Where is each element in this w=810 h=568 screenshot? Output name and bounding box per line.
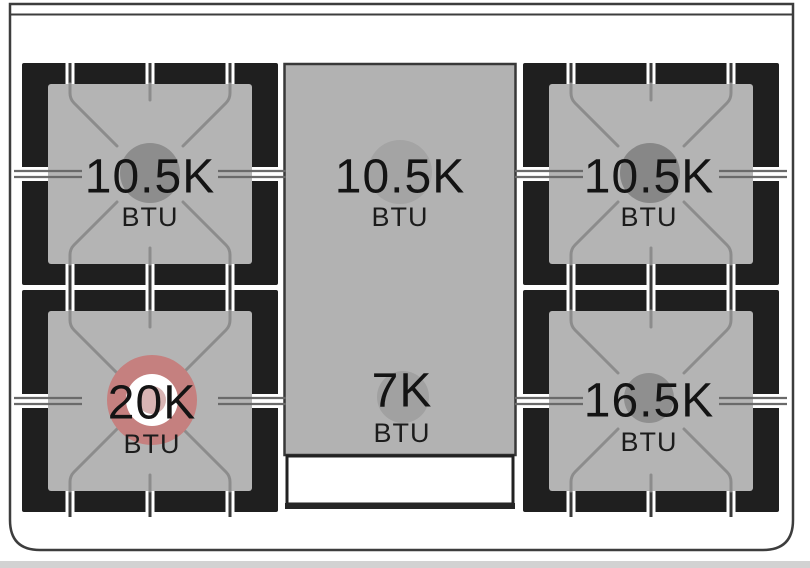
btu-unit-top-left: BTU [122,202,179,232]
btu-unit-top-right: BTU [621,202,678,232]
cooktop-diagram-canvas: 10.5K BTU 10.5K BTU 10.5K BTU 20K BTU 7K… [0,0,810,568]
floor-shadow [0,561,810,568]
griddle-drip-tray [287,456,513,504]
btu-unit-bottom-right: BTU [621,427,678,457]
cooktop-diagram: 10.5K BTU 10.5K BTU 10.5K BTU 20K BTU 7K… [0,0,810,568]
btu-value-top-right: 10.5K [584,151,714,204]
btu-unit-top-center: BTU [372,202,429,232]
btu-value-bottom-right: 16.5K [584,375,714,428]
btu-value-bottom-left: 20K [108,377,196,430]
btu-value-top-left: 10.5K [85,151,215,204]
btu-value-bottom-center: 7K [372,365,433,418]
btu-unit-bottom-center: BTU [374,418,431,448]
btu-unit-bottom-left: BTU [124,429,181,459]
btu-value-top-center: 10.5K [335,151,465,204]
